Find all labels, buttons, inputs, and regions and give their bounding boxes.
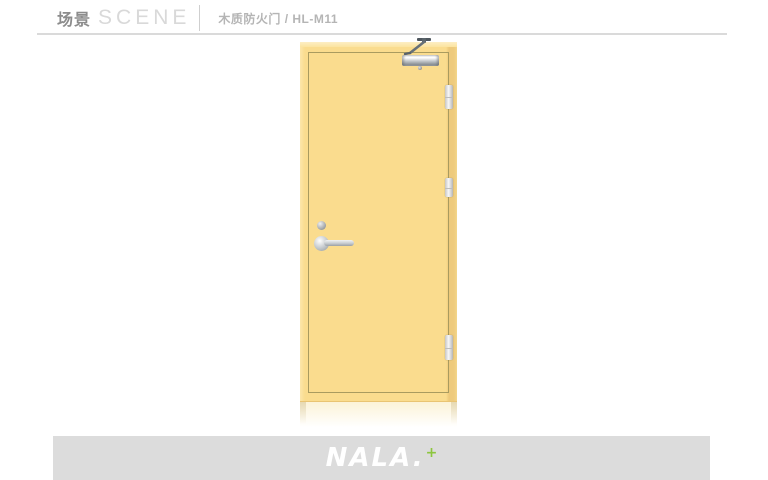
header-rule [37, 33, 727, 35]
door-closer-screw-icon [418, 66, 422, 70]
footer-bar: NALA.+ [53, 436, 710, 480]
hinge-middle-icon [445, 178, 453, 197]
door-reflection-edge [300, 402, 306, 424]
page: 场景 SCENE 木质防火门 / HL-M11 [0, 0, 768, 480]
door-panel-outline [308, 52, 449, 393]
brand-logo: NALA.+ [326, 445, 438, 471]
page-title-cn: 场景 [57, 6, 91, 30]
lock-cylinder-icon [317, 221, 326, 230]
hinge-knuckle-line [445, 97, 453, 98]
page-title-en: SCENE [98, 6, 190, 30]
fire-door-image [300, 42, 457, 402]
door-reflection-edge [451, 402, 457, 424]
door-closer-body-icon [402, 55, 439, 66]
hinge-knuckle-line [445, 188, 453, 189]
hinge-top-icon [445, 85, 453, 109]
product-subtitle: 木质防火门 / HL-M11 [218, 10, 338, 27]
header-divider [199, 5, 200, 31]
brand-text: NALA. [326, 443, 425, 473]
hinge-bottom-icon [445, 335, 453, 360]
door-reflection [300, 402, 457, 432]
header: 场景 SCENE 木质防火门 / HL-M11 [57, 4, 338, 32]
hinge-knuckle-line [445, 348, 453, 349]
lever-handle-icon [324, 240, 354, 246]
brand-plus: + [426, 445, 438, 461]
